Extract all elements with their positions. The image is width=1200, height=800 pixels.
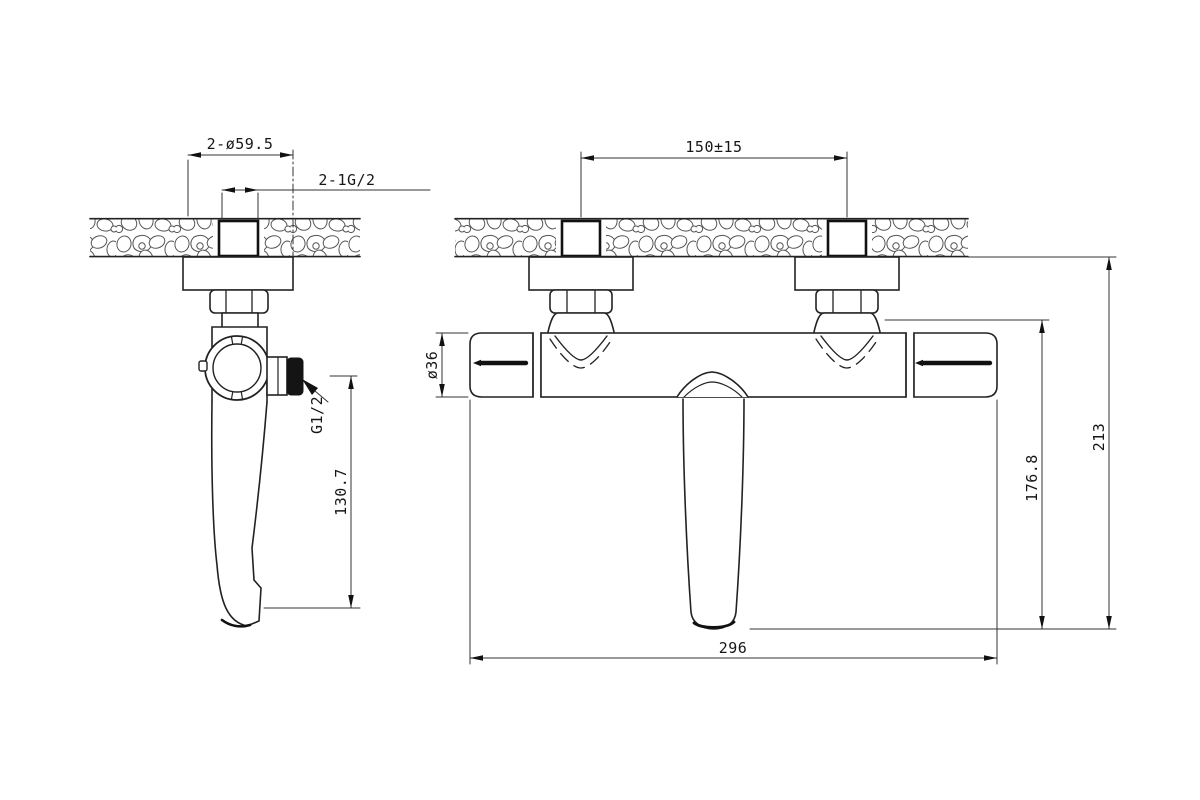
mixer-dimension-drawing: 2-ø59.5 2-1G/2 G1/2 130.7 [0,0,1200,800]
dim-flange-pair-label: 2-ø59.5 [207,135,274,153]
square-escutcheon-right [828,221,866,256]
ring-index-tab [199,361,207,371]
shower-outlet-union [267,357,287,395]
temperature-ring-inner [213,344,261,392]
spout-front [677,372,748,629]
leader-outlet-thread: G1/2 [302,379,328,434]
dim-overall-height-label: 213 [1090,423,1108,452]
mounting-flange-left [529,257,633,290]
hex-nut-right [816,290,878,313]
wall-section [455,219,968,257]
dim-spout-drop-label: 130.7 [332,468,350,516]
front-view: 150±15 ø36 176.8 213 [423,138,1116,664]
drawing-canvas: 2-ø59.5 2-1G/2 G1/2 130.7 [0,0,1200,800]
leader-outlet-thread-label: G1/2 [308,396,326,434]
mounting-flange-right [795,257,899,290]
dim-inlet-spacing-label: 150±15 [685,138,742,156]
dim-overall-width-label: 296 [719,639,748,657]
mounting-flange [183,257,293,290]
hex-nut-left [550,290,612,313]
dim-thread-pair: 2-1G/2 [222,171,430,218]
shower-outlet-cap [287,358,303,395]
square-escutcheon-left [562,221,600,256]
hex-nut [210,290,268,313]
dim-inlet-spacing: 150±15 [581,138,847,217]
valve-neck [222,313,258,327]
spout-side-profile [212,402,267,626]
dim-center-to-spout-label: 176.8 [1023,454,1041,502]
side-view: 2-ø59.5 2-1G/2 G1/2 130.7 [90,135,430,626]
dim-body-diameter-label: ø36 [423,351,441,380]
dim-body-diameter: ø36 [423,333,468,397]
square-escutcheon [219,221,258,256]
dim-thread-pair-label: 2-1G/2 [318,171,375,189]
